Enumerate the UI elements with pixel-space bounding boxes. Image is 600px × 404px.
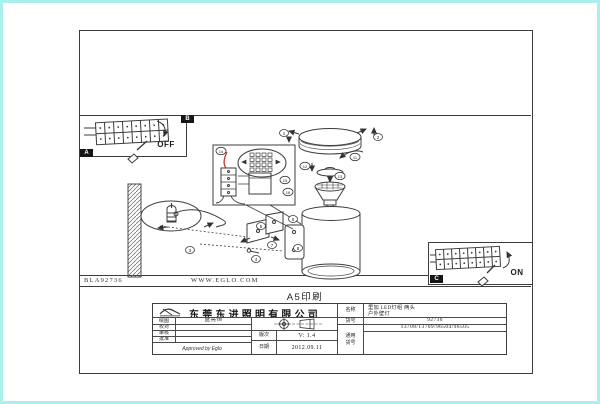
callout-15: 15 [283, 178, 288, 183]
empty-cell [364, 332, 506, 354]
diffuser-disc [289, 128, 374, 158]
wiring-detail-box [213, 145, 301, 229]
title-block: 东莞东进照明有限公司 名称 里加 LED灯组 两头 户外壁灯 绘图 盛亮恒 校对… [152, 303, 507, 355]
company-header-cell: 东莞东进照明有限公司 [153, 304, 338, 318]
name-line2: 户外壁灯 [368, 311, 390, 317]
dongjin-logo [156, 305, 186, 317]
screwdriver-icon [478, 265, 495, 286]
doc-code: BLA92736 [84, 277, 123, 284]
projection-symbol-cell [252, 318, 338, 331]
common-label: 通用 货号 [338, 325, 364, 354]
screwdriver-icon [128, 141, 147, 163]
drawn-label: 绘图 [153, 318, 176, 325]
approved-note: Approved by Eglo [153, 343, 252, 354]
common-value: 13708/13709/96504/96505 [364, 325, 506, 332]
instruction-sheet: { "frame": { "box_a_label": "A", "box_b_… [0, 0, 600, 404]
gu10-bulb [315, 182, 345, 208]
callout-13: 13 [338, 174, 343, 179]
callout-12: 12 [303, 164, 308, 169]
projection-symbol-icon [252, 318, 336, 330]
callout-16: 16 [286, 190, 291, 195]
date-value: 2012.09.11 [277, 341, 338, 354]
terminal-strip-on [430, 246, 509, 286]
date-label: 日期 [252, 341, 277, 354]
common-label-line2: 货号 [345, 340, 355, 347]
website: WWW.EGLO.COM [191, 277, 259, 284]
item-label: 货号 [338, 318, 364, 325]
version-label: 版次 [252, 331, 277, 341]
wall [128, 184, 141, 277]
version-value: V: 1.4 [277, 331, 338, 341]
callout-14: 14 [219, 149, 224, 154]
item-value: 92736 [364, 318, 506, 325]
name-label: 名称 [338, 304, 364, 318]
drawn-value: 盛亮恒 [176, 318, 252, 325]
name-value: 里加 LED灯组 两头 户外壁灯 [364, 304, 506, 318]
terminal-strip-off [84, 119, 169, 163]
print-note: A5印刷 [79, 289, 531, 303]
company-name: 东莞东进照明有限公司 [189, 306, 321, 318]
